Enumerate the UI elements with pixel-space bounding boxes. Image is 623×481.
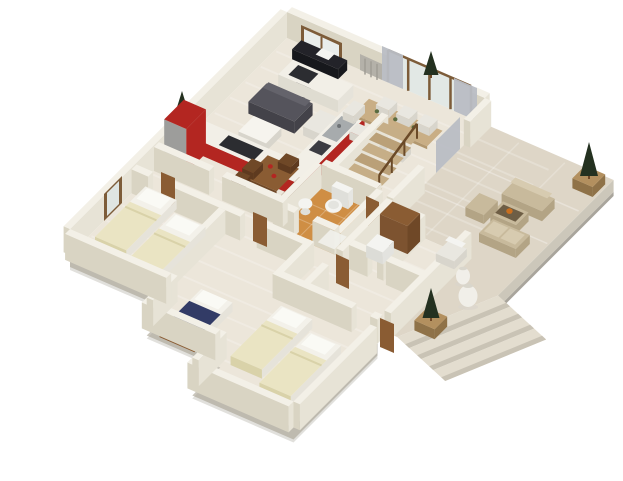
open-door — [253, 212, 267, 247]
vase-rim — [459, 267, 467, 271]
exterior-wall-s4-end — [147, 298, 153, 327]
exterior-wall-s3-end — [215, 330, 220, 361]
open-door — [380, 318, 394, 353]
exterior-wall-s2-end — [192, 358, 198, 387]
hall-wall-s2-end — [240, 212, 245, 241]
outdoor-table-item — [506, 208, 512, 214]
exterior-wall-s1-end — [289, 402, 294, 433]
table-plant — [375, 109, 379, 113]
vase-rim — [463, 284, 473, 288]
east-wall-a-end — [464, 119, 470, 148]
bedroom-wall-n1-end — [352, 303, 357, 332]
exterior-wall-s5-end — [166, 273, 171, 304]
wash-basin — [298, 198, 312, 209]
floorplan-render — [0, 0, 623, 481]
table-item-red — [268, 164, 273, 168]
faucet — [337, 124, 341, 128]
table-plant — [393, 117, 397, 121]
table-item-red — [271, 174, 276, 178]
exterior-wall-e2-end — [294, 402, 300, 431]
toilet-seat — [328, 201, 339, 209]
white-vase — [459, 285, 478, 307]
open-door — [336, 254, 349, 289]
hall-wall-n2-end — [283, 198, 288, 227]
floorplan-svg — [0, 0, 623, 481]
basin-pedestal — [300, 208, 310, 215]
hall-wall-n1-end — [209, 166, 214, 195]
bathroom-wall-s1-end — [294, 208, 299, 237]
